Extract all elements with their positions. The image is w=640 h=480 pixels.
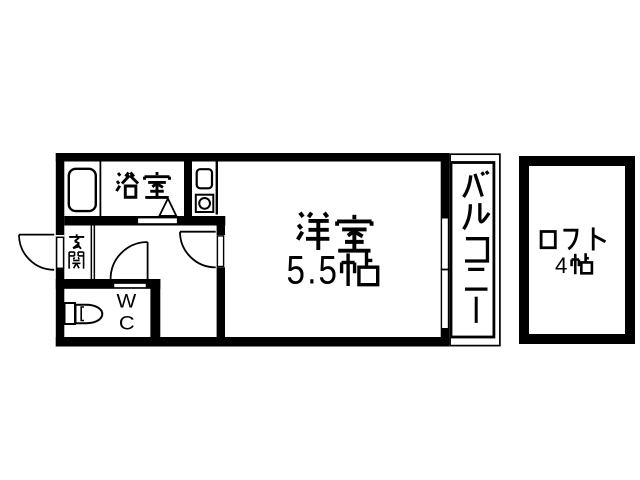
svg-text:.: . bbox=[307, 248, 316, 292]
svg-text:C: C bbox=[119, 313, 135, 334]
svg-text:4: 4 bbox=[555, 253, 567, 278]
svg-text:5: 5 bbox=[287, 248, 305, 292]
svg-text:5: 5 bbox=[319, 248, 337, 292]
svg-text:W: W bbox=[116, 291, 136, 312]
